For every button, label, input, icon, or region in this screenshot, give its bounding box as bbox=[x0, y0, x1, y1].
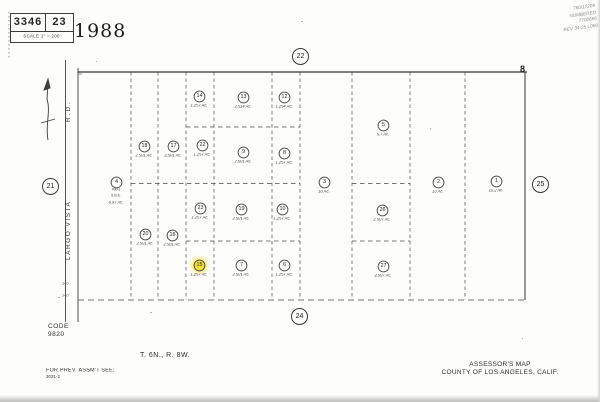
parcel-number: 1 bbox=[490, 176, 502, 188]
corner-point-label: 8 bbox=[520, 64, 525, 74]
parcel-marker-2: 210 Ac. bbox=[408, 176, 468, 196]
parcel-marker-26: 262.507 Ac. bbox=[352, 204, 412, 224]
parcel-number: 15 bbox=[193, 260, 205, 272]
scan-speck bbox=[96, 61, 97, 62]
boundary-circle-24: 24 bbox=[291, 308, 308, 325]
parcel-marker-10: 101.257 Ac. bbox=[252, 203, 312, 223]
page-bottom-shadow bbox=[0, 395, 600, 402]
parcel-number: 14 bbox=[193, 91, 205, 103]
parcel-number: 19 bbox=[235, 204, 247, 216]
parcel-number: 8 bbox=[278, 148, 290, 160]
parcel-marker-8: 81.257 Ac. bbox=[254, 147, 314, 167]
book-page-row: 3346 23 bbox=[11, 14, 73, 31]
parcel-acreage: 2.501 Ac. bbox=[152, 243, 193, 247]
book-number: 3346 bbox=[11, 14, 46, 31]
map-title: ASSESSOR'S MAP bbox=[420, 361, 580, 369]
parcel-marker-1: 110.2 Ac. bbox=[466, 175, 526, 195]
scan-speck bbox=[430, 128, 431, 129]
parcel-number: 2 bbox=[432, 177, 444, 189]
road-suffix-label: R.D. bbox=[65, 92, 72, 122]
scale-row: SCALE 1" = 200' bbox=[11, 31, 73, 42]
parcel-number: 6 bbox=[278, 260, 290, 272]
prev-assessment-note: FOR PREV. ASSM'T SEE: 3031-2 bbox=[46, 368, 122, 381]
parcel-marker-12: 121.254 Ac. bbox=[254, 91, 314, 111]
parcel-number: 10 bbox=[276, 204, 288, 216]
parcel-marker-5: 55.7 Ac. bbox=[353, 119, 413, 139]
parcel-marker-3: 310 Ac. bbox=[294, 176, 354, 196]
parcel-acreage: 10 Ac. bbox=[418, 190, 459, 194]
assessor-map-caption: ASSESSOR'S MAP COUNTY OF LOS ANGELES, CA… bbox=[420, 361, 580, 377]
parcel-number: 16 bbox=[166, 230, 178, 242]
prev-assessment-value: 3031-2 bbox=[46, 375, 103, 380]
scan-speck bbox=[150, 312, 152, 313]
parcel-number: 27 bbox=[377, 261, 389, 273]
road-name-label: LARGO VISTA bbox=[65, 182, 72, 260]
code-label: CODE bbox=[48, 323, 69, 331]
parcel-acreage: 1.257 Ac. bbox=[264, 161, 305, 165]
north-arrow bbox=[41, 79, 55, 140]
scan-speck bbox=[58, 297, 60, 298]
parcel-number: 13 bbox=[237, 92, 249, 104]
parcel-note: 400'± bbox=[99, 189, 134, 192]
scan-speck bbox=[301, 21, 303, 22]
page-number: 23 bbox=[46, 14, 73, 31]
parcel-acreage: 10.2 Ac. bbox=[476, 189, 517, 193]
prev-assessment-label: FOR PREV. ASSM'T SEE: bbox=[46, 368, 115, 373]
parcel-number: 7 bbox=[235, 260, 247, 272]
township-range-label: T. 6N., R. 8W. bbox=[140, 352, 190, 359]
parcel-acreage: 1.254 Ac. bbox=[264, 105, 305, 109]
parcel-number: 5 bbox=[377, 120, 389, 132]
parcel-acreage: 2.507 Ac. bbox=[363, 274, 404, 278]
parcel-acreage: 8.97 Ac. bbox=[96, 201, 137, 205]
scan-speck bbox=[522, 338, 523, 339]
parcel-number: 9 bbox=[237, 147, 249, 159]
parcel-acreage: 1.257 Ac. bbox=[264, 273, 305, 277]
road-station-label: 140 bbox=[62, 282, 69, 286]
parcel-note: S.B.E. bbox=[99, 195, 134, 198]
parcel-number: 22 bbox=[196, 140, 208, 152]
parcel-number: 26 bbox=[376, 205, 388, 217]
boundary-circle-21: 21 bbox=[42, 178, 59, 195]
parcel-number: 3 bbox=[318, 177, 330, 189]
road-station-label: 140 bbox=[62, 294, 69, 298]
parcel-acreage: 1.257 Ac. bbox=[262, 217, 303, 221]
parcel-number: 12 bbox=[278, 92, 290, 104]
parcel-number: 4 bbox=[110, 177, 122, 189]
scale-label: SCALE 1" = 200' bbox=[23, 33, 61, 40]
boundary-circle-25: 25 bbox=[532, 176, 549, 193]
code-value: 9820 bbox=[48, 331, 69, 339]
parcel-acreage: 10 Ac. bbox=[304, 190, 345, 194]
parcel-marker-4: 4400'±S.B.E.8.97 Ac. bbox=[86, 176, 146, 207]
boundary-circle-22: 22 bbox=[292, 48, 309, 65]
parcel-number: 23 bbox=[194, 203, 206, 215]
parcel-acreage: 5.7 Ac. bbox=[363, 133, 404, 137]
parcel-marker-6: 61.257 Ac. bbox=[254, 259, 314, 279]
map-year: 1988 bbox=[74, 20, 126, 42]
parcel-marker-16: 162.501 Ac. bbox=[142, 229, 202, 249]
map-subtitle: COUNTY OF LOS ANGELES, CALIF. bbox=[420, 369, 580, 377]
map-book-page-box: 3346 23 SCALE 1" = 200' bbox=[10, 13, 74, 43]
parcel-marker-27: 272.507 Ac. bbox=[353, 260, 413, 280]
road-width-label: 30 bbox=[78, 73, 82, 76]
parcel-acreage: 2.507 Ac. bbox=[362, 218, 403, 222]
assessor-map-page: 3346 23 SCALE 1" = 200' 1988 760/17209NU… bbox=[0, 0, 600, 402]
tax-code-block: CODE 9820 bbox=[48, 323, 69, 338]
